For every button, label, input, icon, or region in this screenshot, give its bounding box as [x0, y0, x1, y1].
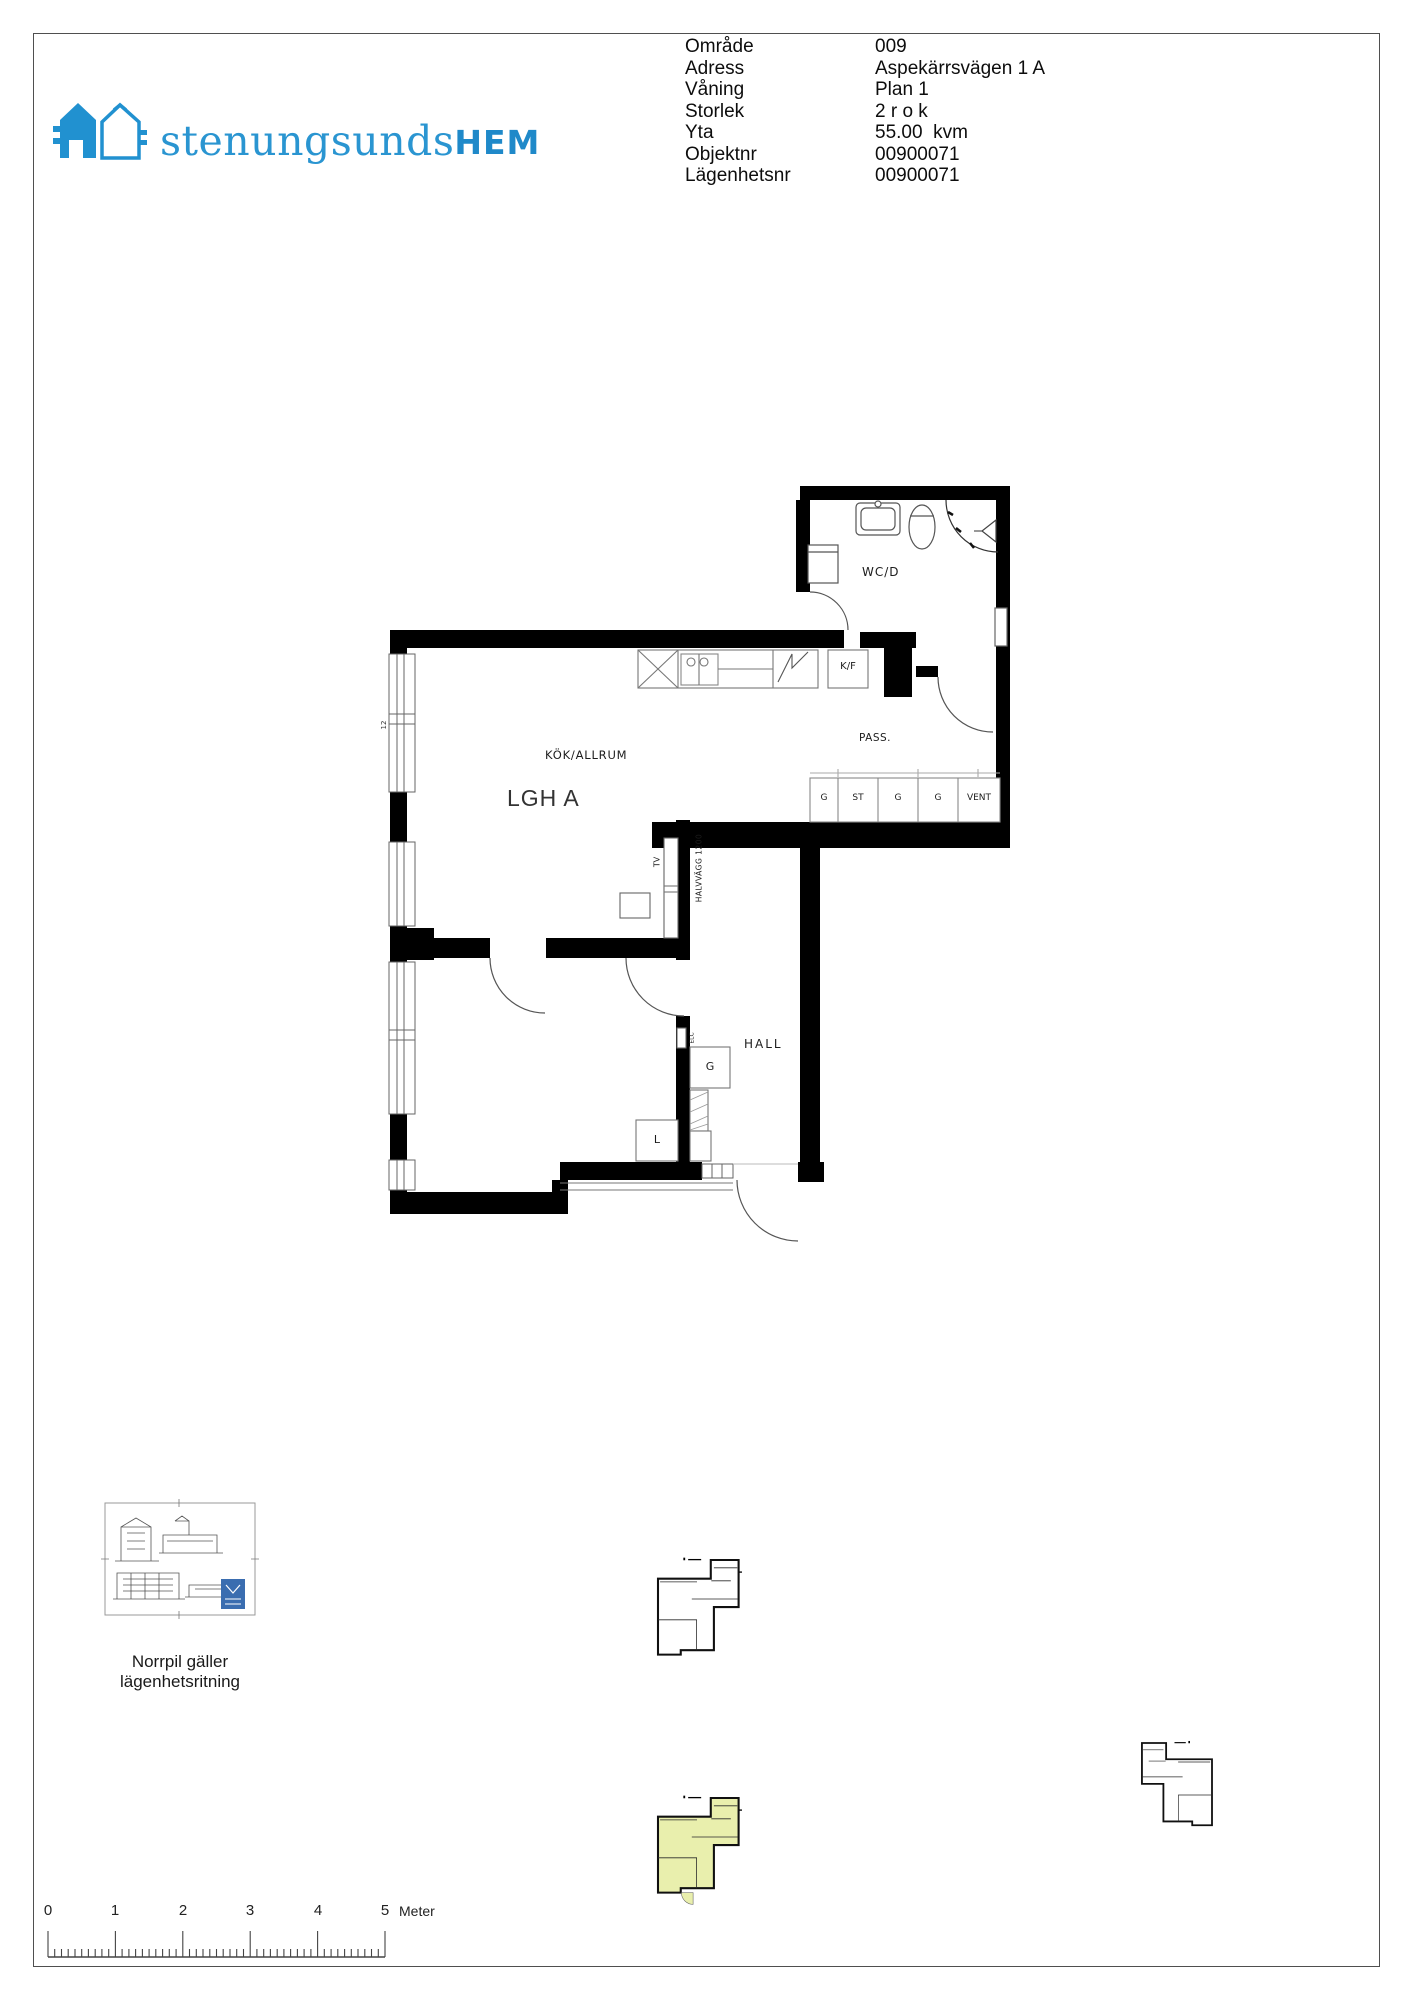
north-note-line1: Norrpil gäller: [90, 1652, 270, 1672]
mini-plan-outline: [658, 1558, 742, 1655]
scale-tick-1: 1: [105, 1902, 125, 1919]
north-note-line2: lägenhetsritning: [90, 1672, 270, 1692]
scale-tick-0: 0: [38, 1902, 58, 1919]
bathroom-fixtures: [808, 500, 1007, 646]
floorplan-drawing: [0, 0, 1413, 2000]
windows: [389, 654, 415, 1190]
closet-label-g2: G: [878, 793, 918, 803]
elc-label: ELC: [689, 1032, 696, 1043]
sheet-logo-block: [221, 1579, 245, 1609]
closet-label-g1: G: [810, 793, 838, 803]
fridge-label: K/F: [828, 661, 868, 672]
scale-tick-2: 2: [173, 1902, 193, 1919]
closet-label-st: ST: [838, 793, 878, 803]
closet-label-vent: VENT: [958, 793, 1000, 803]
hall-closet-label: G: [690, 1060, 730, 1073]
scale-tick-4: 4: [308, 1902, 328, 1919]
closet-label-g3: G: [918, 793, 958, 803]
mini-plan-mirrored: [1142, 1741, 1212, 1825]
door-arcs: [490, 592, 993, 1241]
scale-tick-3: 3: [240, 1902, 260, 1919]
floorplan-document-page: stenungsundsHEM Område009 AdressAspekärr…: [0, 0, 1413, 2000]
room-label-kok: KÖK/ALLRUM: [545, 748, 627, 762]
apartment-label: LGH A: [507, 785, 580, 812]
wall-mark-label: 12: [380, 721, 388, 730]
room-label-pass: PASS.: [859, 732, 891, 744]
mini-plan-highlighted: [658, 1796, 742, 1905]
room-label-hall: HALL: [744, 1037, 783, 1051]
hall-fixtures: [620, 838, 730, 1161]
room-label-wcd: WC/D: [862, 565, 900, 579]
north-arrow-note: Norrpil gäller lägenhetsritning: [90, 1652, 270, 1692]
elevation-sheet-thumbnail: [101, 1499, 259, 1619]
scale-tick-5: 5: [375, 1902, 395, 1919]
linen-closet-label: L: [636, 1133, 678, 1146]
scale-unit-label: Meter: [399, 1903, 435, 1919]
scale-ruler: [48, 1931, 385, 1957]
tv-label: TV: [653, 857, 662, 867]
half-wall-label: HALVVÄGG 1200: [695, 834, 704, 903]
